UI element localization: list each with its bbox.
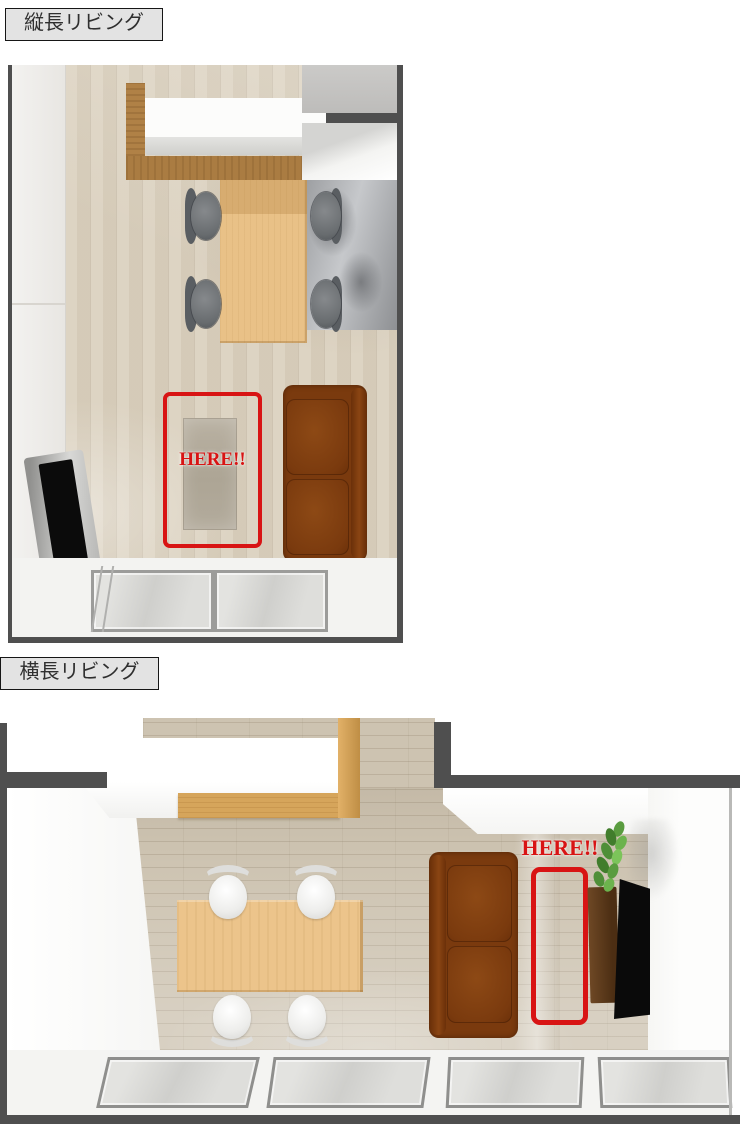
sofa-backrest [351,388,366,559]
chair-seat [311,192,341,240]
sofa [283,385,367,562]
dining-chair [305,182,342,250]
section-label-horizontal-living: 横長リビング [0,657,159,690]
sofa-backrest [430,855,446,1035]
balcony [12,558,397,637]
sofa [429,852,518,1038]
stool-seat [297,875,335,919]
sofa-cushion [286,399,349,475]
sofa-cushion [286,479,349,555]
here-highlight-box [531,867,588,1025]
stool-seat [213,995,251,1039]
dining-chair [185,270,222,338]
stool-seat [209,875,247,919]
sliding-door [266,1057,430,1108]
stool-seat [288,995,326,1039]
dining-stool [206,985,258,1047]
sliding-door [598,1057,733,1108]
dark-wall [434,722,451,788]
kitchen-counter-wood-edge [338,718,360,818]
refrigerator [302,123,397,180]
dark-wall [8,637,403,643]
here-highlight-box [163,392,262,548]
dining-stool [281,985,333,1047]
dark-wall [0,772,107,788]
here-label: HERE!! [159,450,266,470]
tv [614,879,650,1019]
kitchen-counter-wood-edge [126,156,308,180]
chair-seat [191,192,221,240]
dining-stool [202,865,254,927]
dining-table [220,180,307,343]
dining-stool [290,865,342,927]
sofa-cushion [447,865,512,942]
chair-seat [311,280,341,328]
section-label-vertical-living: 縦長リビング [5,8,163,41]
floorplan-horizontal-living: HERE!! [0,715,740,1124]
sliding-door [96,1057,260,1108]
floorplan-vertical-living: HERE!! [8,65,403,643]
tv-stand [587,887,619,1004]
dining-chair [185,182,222,250]
dark-wall [0,1115,740,1124]
dark-wall [8,65,12,643]
sofa-cushion [447,946,512,1023]
balcony [7,1050,731,1115]
chair-seat [191,280,221,328]
sliding-door [446,1057,585,1108]
dining-chair [305,270,342,338]
wall-edge-line [729,788,732,1115]
here-label: HERE!! [498,836,622,859]
kitchen-counter-wood-edge [178,793,340,818]
kitchen-cabinet [302,65,397,113]
sliding-door [214,570,328,632]
dark-wall [451,775,740,788]
dark-wall-band [326,113,397,123]
page: 縦長リビング HERE!! [0,0,740,1124]
dark-wall [397,65,403,643]
